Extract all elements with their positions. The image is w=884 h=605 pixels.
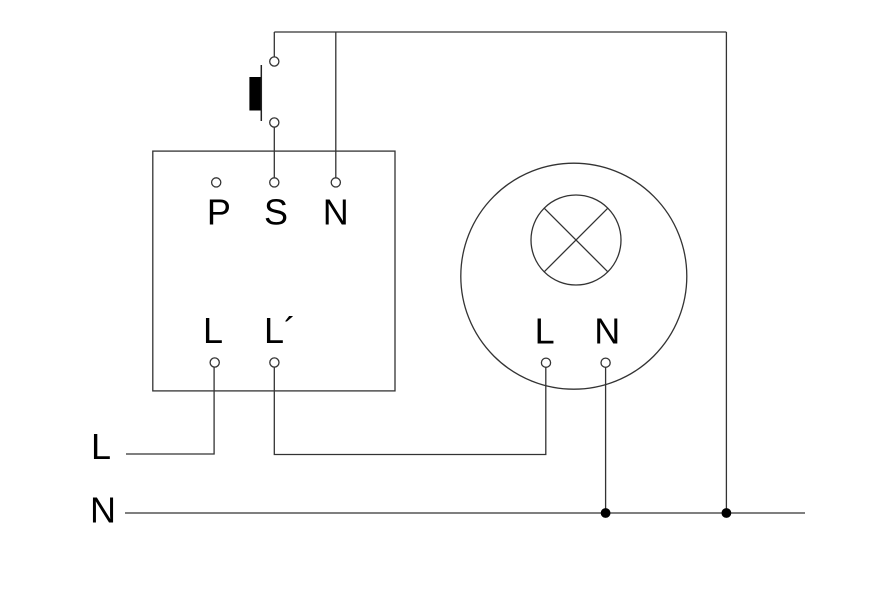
svg-text:N: N — [90, 489, 116, 530]
svg-text:N: N — [323, 192, 349, 233]
svg-text:S: S — [264, 192, 288, 233]
svg-text:L: L — [91, 426, 111, 467]
svg-text:N: N — [594, 311, 620, 352]
svg-text:L: L — [535, 311, 555, 352]
svg-text:L: L — [203, 310, 223, 351]
svg-text:P: P — [207, 192, 231, 233]
svg-text:L´: L´ — [264, 310, 296, 351]
